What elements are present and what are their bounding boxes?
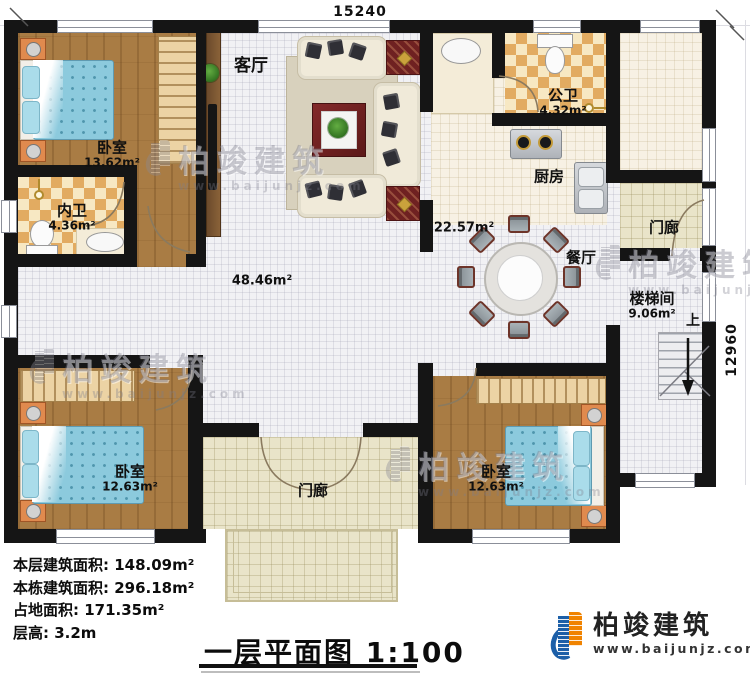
sofa-pillow bbox=[305, 42, 323, 60]
sofa-pillow bbox=[381, 121, 398, 138]
label-dining: 餐厅 bbox=[566, 249, 596, 266]
nightstand bbox=[20, 38, 46, 60]
sink-basin bbox=[578, 167, 604, 187]
window bbox=[702, 128, 716, 182]
sofa-pillow bbox=[327, 184, 344, 201]
wardrobe bbox=[158, 36, 198, 164]
brand-building-icon bbox=[551, 612, 585, 664]
label-living: 客厅 bbox=[234, 57, 268, 77]
info-line: 本栋建筑面积: 296.18m² bbox=[13, 577, 194, 600]
window bbox=[57, 20, 153, 33]
label-bedroom-br: 卧室 12.63m² bbox=[468, 463, 524, 494]
nightstand bbox=[581, 404, 607, 426]
bed-pillow bbox=[573, 431, 590, 466]
bed-pillow bbox=[22, 464, 39, 498]
title-underline bbox=[199, 664, 417, 668]
bed-pillow bbox=[22, 430, 39, 464]
label-stair-up: 上 bbox=[686, 313, 700, 329]
label-porch-front: 门廊 bbox=[298, 482, 328, 499]
wardrobe bbox=[20, 370, 135, 402]
info-line: 占地面积: 171.35m² bbox=[13, 599, 194, 622]
nightstand bbox=[20, 140, 46, 162]
label-kitchen: 厨房 bbox=[534, 168, 564, 185]
window bbox=[56, 529, 155, 544]
kitchen-basin bbox=[441, 38, 481, 64]
nightstand bbox=[20, 402, 46, 424]
label-bath-inner: 内卫 4.36m² bbox=[48, 202, 95, 233]
window bbox=[1, 305, 17, 338]
info-line: 本层建筑面积: 148.09m² bbox=[13, 554, 194, 577]
brand-url: www.baijunjz.com bbox=[593, 641, 750, 656]
build-info: 本层建筑面积: 148.09m² 本栋建筑面积: 296.18m² 占地面积: … bbox=[13, 554, 194, 644]
kitchen-floor-east bbox=[620, 33, 702, 170]
dining-chair bbox=[563, 266, 581, 288]
dimension-right: 12960 bbox=[724, 323, 740, 377]
window bbox=[640, 20, 700, 33]
wardrobe bbox=[476, 378, 606, 404]
dining-chair bbox=[508, 321, 530, 339]
porch-right-floor bbox=[620, 183, 702, 248]
title-underline-thin bbox=[201, 671, 420, 673]
label-dining-area: 22.57m² bbox=[434, 222, 494, 237]
dining-chair bbox=[457, 266, 475, 288]
label-porch-right: 门廊 bbox=[649, 219, 679, 236]
stove-burner bbox=[516, 135, 531, 150]
label-bedroom-tl: 卧室 13.62m² bbox=[84, 139, 140, 170]
toilet-bowl bbox=[545, 46, 565, 74]
dim-guide-right bbox=[745, 20, 746, 485]
side-mat-north bbox=[386, 40, 420, 75]
logo-building-blue bbox=[558, 616, 569, 656]
label-hall-area: 48.46m² bbox=[232, 275, 292, 290]
window bbox=[1, 200, 17, 233]
brand-name: 柏竣建筑 bbox=[593, 612, 750, 641]
bedroom-tl-vestibule-floor bbox=[137, 165, 196, 267]
plant bbox=[328, 118, 348, 138]
stove-burner bbox=[538, 135, 553, 150]
window bbox=[472, 529, 570, 544]
window bbox=[635, 473, 695, 488]
window bbox=[533, 20, 581, 33]
vanity-sink bbox=[86, 232, 124, 252]
window bbox=[258, 20, 390, 33]
info-line: 层高: 3.2m bbox=[13, 622, 194, 645]
window bbox=[702, 188, 716, 246]
sofa-pillow bbox=[383, 93, 400, 110]
side-mat-south bbox=[386, 186, 420, 221]
bed-pillow bbox=[22, 101, 40, 134]
label-stairwell: 楼梯间 9.06m² bbox=[628, 290, 675, 321]
sofa-pillow bbox=[327, 39, 344, 56]
label-bedroom-bl: 卧室 12.63m² bbox=[102, 463, 158, 494]
sink-basin bbox=[578, 189, 604, 209]
outside-mask bbox=[618, 487, 750, 533]
tv bbox=[208, 104, 217, 190]
nightstand bbox=[581, 505, 607, 527]
window bbox=[702, 272, 716, 322]
label-bath-public: 公卫 4.32m² bbox=[539, 87, 586, 118]
dimension-top: 15240 bbox=[333, 4, 387, 20]
logo-building-orange bbox=[569, 612, 582, 646]
dining-table-top bbox=[497, 255, 543, 301]
dining-chair bbox=[508, 215, 530, 233]
floor-plan-page: 柏竣建筑www.baijunjz.com 柏竣建筑www.baijunjz.co… bbox=[0, 0, 750, 682]
bed-pillow bbox=[22, 66, 40, 99]
light-icon bbox=[34, 190, 44, 200]
bed-pillow bbox=[573, 466, 590, 501]
brand-logo: 柏竣建筑 www.baijunjz.com bbox=[551, 612, 750, 664]
porch-step-line bbox=[233, 529, 392, 593]
